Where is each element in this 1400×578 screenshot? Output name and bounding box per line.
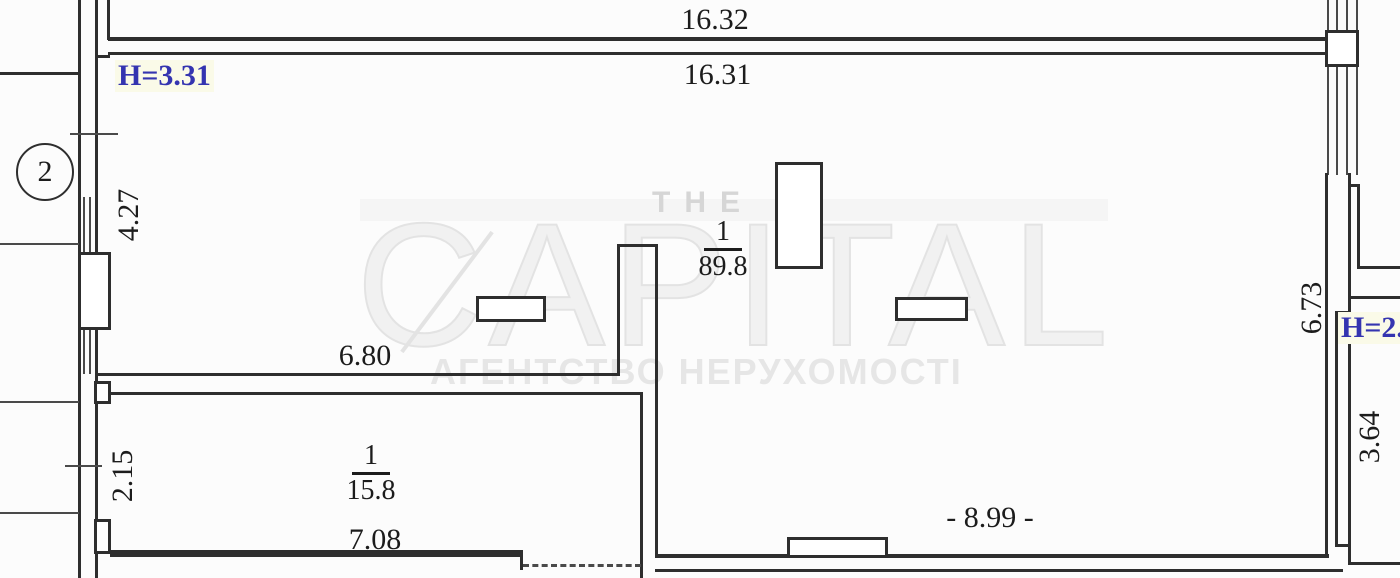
room2-right-wall: [640, 392, 643, 578]
room1-label: 1 89.8: [692, 216, 754, 283]
fixture-right: [895, 297, 968, 321]
room2-area: 15.8: [342, 475, 400, 507]
dimension-right-upper: 6.73: [1297, 278, 1327, 338]
ceiling-height-left: H=3.31: [115, 60, 214, 92]
floor-plan-scan: { "plan": { "axis_bubble": "2", "heights…: [0, 0, 1400, 578]
room2-number: 1: [352, 442, 390, 475]
wall-tick-lower: [65, 465, 102, 467]
wall-top-outer: [108, 37, 1329, 41]
partition-right-line: [655, 244, 658, 558]
dimension-right-lower: 3.64: [1355, 407, 1385, 467]
room1-number: 1: [704, 218, 742, 251]
right-stub-v: [1357, 184, 1360, 269]
window-right-line: [1356, 0, 1358, 175]
interior-wall-top-line: [97, 373, 620, 376]
window-right-line: [1327, 0, 1329, 175]
column-vertical: [775, 162, 823, 269]
room2-bottom-wall-end: [520, 550, 523, 570]
dimension-room2-width: 7.08: [320, 525, 430, 555]
wall-notch-lower: [94, 519, 111, 554]
room2-label: 1 15.8: [342, 440, 400, 507]
grid-line-left-2: [0, 243, 79, 245]
dimension-left-lower: 2.15: [108, 446, 138, 506]
grid-line-left-4: [0, 512, 79, 514]
opening-dashed-line: [523, 564, 641, 567]
right-room-upper-wall: [1357, 266, 1400, 269]
wall-bottom-outer: [655, 569, 1343, 572]
dimension-top-outer: 16.32: [655, 5, 775, 35]
fixture-left: [476, 296, 546, 322]
interior-wall-bottom-line: [110, 392, 643, 395]
ceiling-height-right: H=2.7: [1338, 312, 1400, 344]
partition-top-cap: [617, 244, 658, 247]
right-room-left-wall: [1335, 311, 1338, 547]
window-left-lower-line: [83, 329, 85, 374]
grid-line-left-1: [0, 72, 80, 75]
dimension-left-upper: 4.27: [114, 185, 144, 245]
partition-left-line: [617, 244, 620, 376]
window-right-line: [1346, 0, 1348, 175]
wall-tick-upper: [70, 133, 118, 135]
dimension-top-inner: 16.31: [660, 60, 775, 90]
window-left-upper-line: [83, 197, 85, 253]
window-left-upper-line: [89, 197, 91, 253]
axis-bubble-label: 2: [38, 155, 53, 189]
window-right-line: [1336, 0, 1338, 175]
watermark-agency: АГЕНТСТВО НЕРУХОМОСТІ: [430, 354, 963, 390]
wall-top-inner: [108, 52, 1329, 55]
axis-bubble: 2: [16, 143, 74, 201]
pier-right-top: [1325, 30, 1359, 67]
dimension-bottom: - 8.99 -: [920, 503, 1060, 533]
wall-right-outer-face: [1348, 173, 1351, 547]
right-room-bottom-wall: [1348, 562, 1400, 565]
right-room-top-wall: [1348, 296, 1400, 299]
wall-top-left-stub: [107, 0, 110, 40]
room2-bottom-wall: [110, 550, 522, 557]
dimension-hall-width: 6.80: [310, 341, 420, 371]
wall-bottom-inner: [655, 554, 1329, 558]
wall-notch-upper: [94, 381, 111, 404]
room1-area: 89.8: [692, 251, 754, 283]
pier-left: [78, 252, 111, 330]
grid-line-left-3: [0, 401, 79, 403]
wall-right-inner-face: [1325, 173, 1328, 558]
window-left-lower-line: [89, 329, 91, 374]
bottom-wall-pier: [787, 537, 888, 558]
